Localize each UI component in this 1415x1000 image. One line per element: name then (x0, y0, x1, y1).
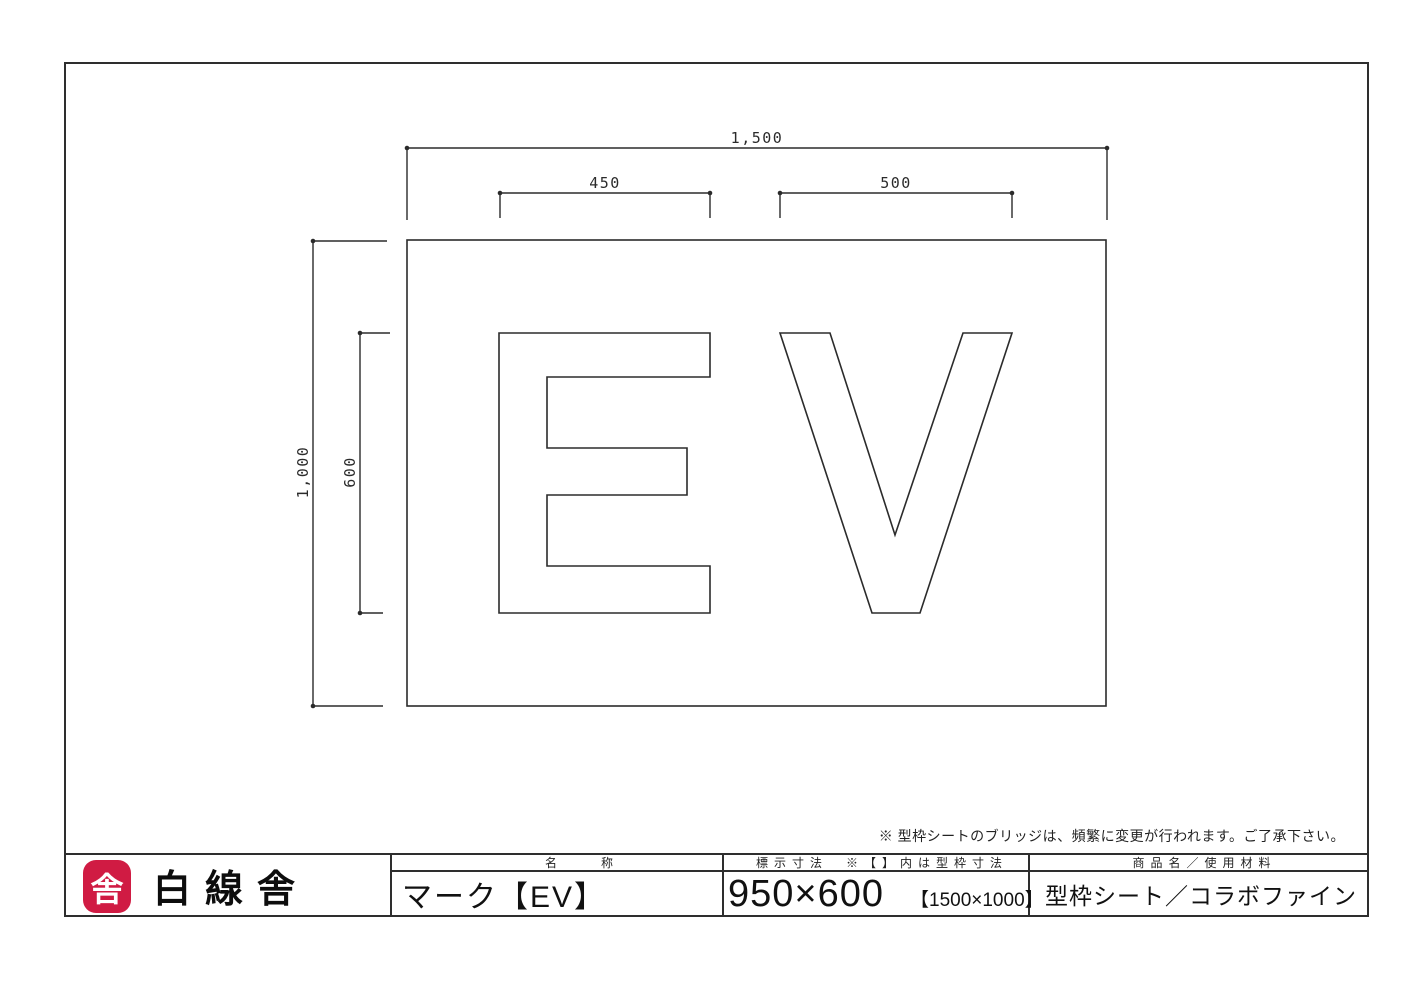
company-logo-glyph: 舎 (91, 863, 124, 911)
dim-label-overall-height: 1,000 (294, 446, 312, 499)
bridge-note: ※ 型枠シートのブリッジは、頻繁に変更が行われます。ご了承下さい。 (879, 826, 1345, 846)
material-header: 商品名／使用材料 (1030, 854, 1373, 871)
dim-label-overall-width: 1,500 (731, 129, 784, 147)
name-value: マーク【EV】 (402, 871, 720, 917)
cad-drawing: 1,500 450 500 1,000 600 (0, 0, 1415, 1000)
size-bracket: 【1500×1000】 (910, 885, 1044, 912)
letter-v-outline (780, 333, 1012, 613)
name-header: 名称 (392, 854, 766, 871)
company-logo: 舎 (83, 860, 131, 913)
stencil-drawing-page: 1,500 450 500 1,000 600 ※ 型枠シートのブリッジは、頻繁… (0, 0, 1415, 1000)
dim-label-e-width: 450 (589, 174, 621, 192)
letter-e-outline (499, 333, 710, 613)
size-main: 950×600 (728, 873, 884, 916)
size-value: 950×600 【1500×1000】 (728, 871, 1028, 917)
dimension-end-dots (311, 146, 1110, 709)
dim-label-letter-height: 600 (341, 456, 359, 488)
company-name: 白線舎 (153, 854, 309, 917)
size-header: 標示寸法 ※【】内は型枠寸法 (724, 854, 1034, 871)
dimension-lines (313, 148, 1107, 706)
dim-label-v-width: 500 (880, 174, 912, 192)
sheet-outline (407, 240, 1106, 706)
material-value: 型枠シート／コラボファイン (1045, 871, 1367, 917)
